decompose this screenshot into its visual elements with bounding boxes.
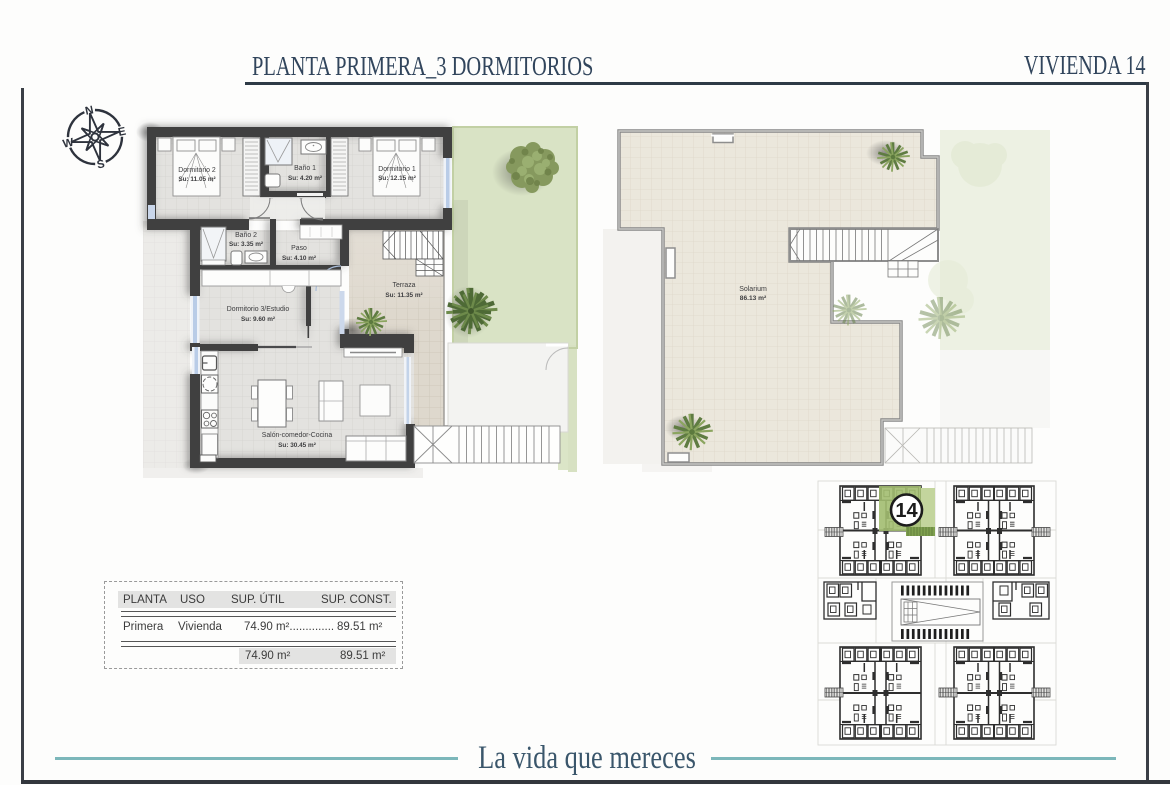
svg-text:Su: 11.35 m²: Su: 11.35 m² — [385, 292, 422, 299]
svg-text:S: S — [96, 158, 106, 171]
svg-text:Su: 12.15 m²: Su: 12.15 m² — [378, 175, 416, 182]
svg-text:Baño 2: Baño 2 — [235, 232, 257, 239]
svg-text:Dormitorio 3/Estudio: Dormitorio 3/Estudio — [227, 306, 290, 313]
svg-text:N: N — [84, 104, 95, 117]
svg-text:Terraza: Terraza — [393, 282, 416, 289]
svg-text:Su: 9.60 m²: Su: 9.60 m² — [241, 316, 275, 323]
svg-text:E: E — [117, 126, 127, 139]
svg-text:Su: 3.35 m²: Su: 3.35 m² — [229, 241, 263, 248]
svg-text:86.13 m²: 86.13 m² — [740, 295, 767, 302]
svg-text:W: W — [62, 137, 75, 151]
svg-text:Baño 1: Baño 1 — [294, 165, 316, 172]
svg-text:Salón-comedor-Cocina: Salón-comedor-Cocina — [262, 432, 333, 439]
svg-text:Su: 11.05 m²: Su: 11.05 m² — [178, 176, 215, 183]
svg-text:Su: 4.20 m²: Su: 4.20 m² — [288, 175, 322, 182]
svg-text:Dormitorio 1: Dormitorio 1 — [378, 166, 416, 173]
svg-text:Paso: Paso — [291, 245, 307, 252]
svg-text:14: 14 — [895, 500, 918, 522]
svg-text:Solarium: Solarium — [739, 286, 767, 293]
svg-text:Dormitorio 2: Dormitorio 2 — [178, 167, 216, 174]
svg-text:Su: 30.45 m²: Su: 30.45 m² — [278, 442, 316, 449]
svg-text:Su: 4.10 m²: Su: 4.10 m² — [282, 255, 316, 262]
